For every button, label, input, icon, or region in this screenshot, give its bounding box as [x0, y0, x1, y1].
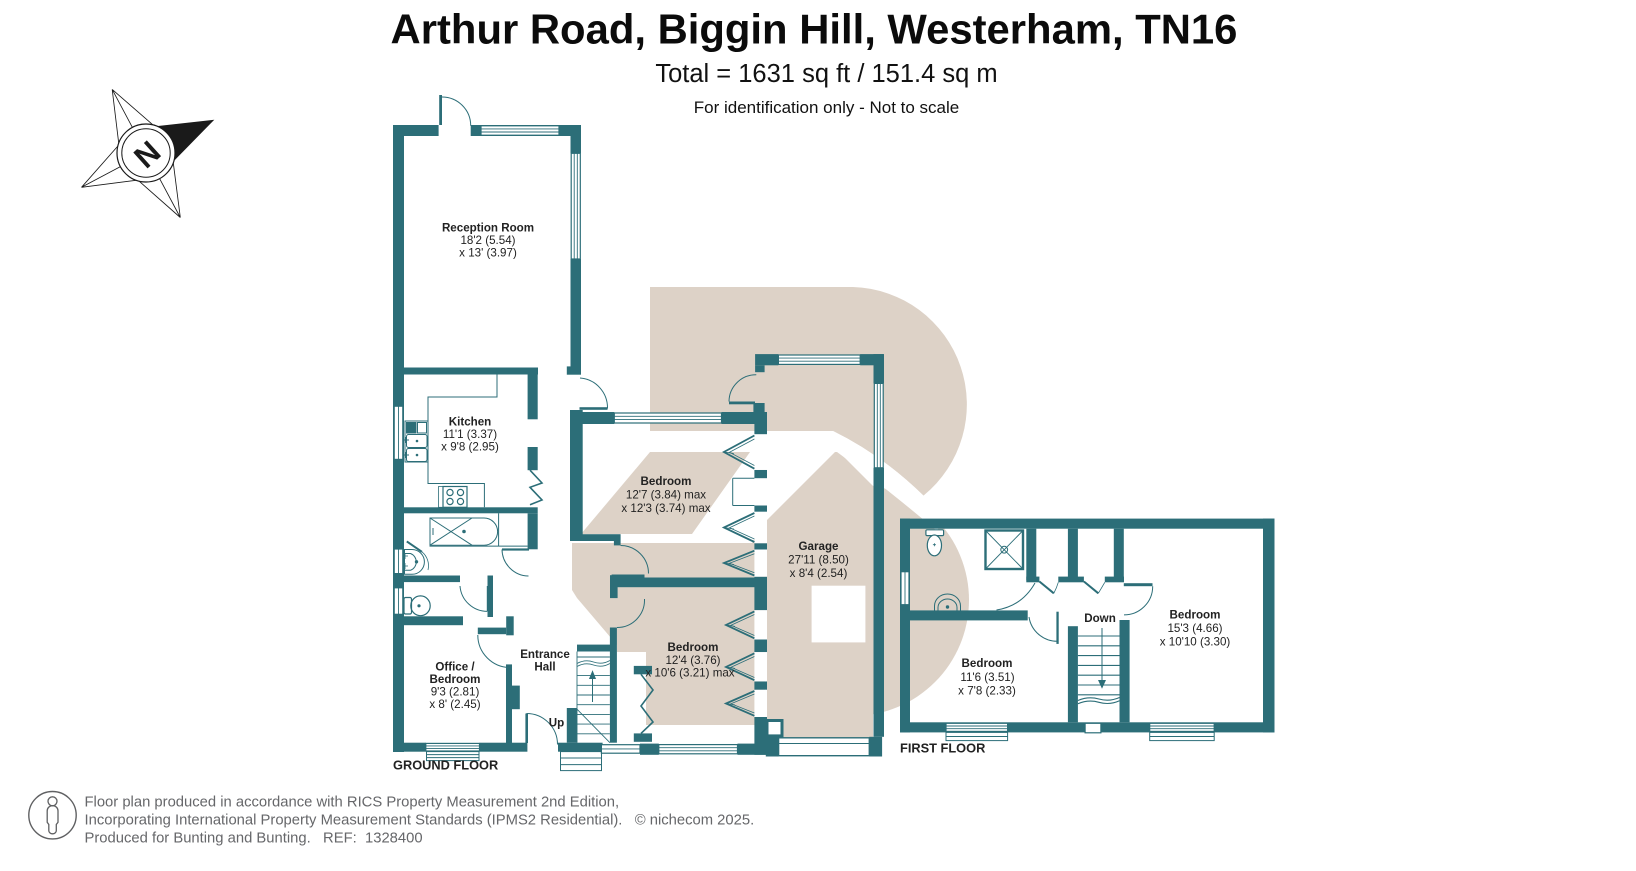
svg-text:x 7'8 (2.33): x 7'8 (2.33)	[958, 685, 1016, 698]
svg-text:GROUND FLOOR: GROUND FLOOR	[393, 758, 498, 773]
svg-text:x 9'8 (2.95): x 9'8 (2.95)	[441, 441, 499, 454]
svg-text:12'4 (3.76): 12'4 (3.76)	[665, 654, 720, 667]
svg-text:x 8'4 (2.54): x 8'4 (2.54)	[790, 567, 848, 580]
svg-text:FIRST FLOOR: FIRST FLOOR	[900, 741, 985, 756]
svg-text:Entrance: Entrance	[520, 648, 570, 661]
svg-text:Bedroom: Bedroom	[641, 475, 692, 488]
svg-text:12'7 (3.84) max: 12'7 (3.84) max	[626, 489, 706, 502]
svg-text:Bedroom: Bedroom	[668, 641, 719, 654]
svg-text:Office /: Office /	[435, 661, 475, 674]
svg-text:Kitchen: Kitchen	[449, 416, 492, 429]
svg-text:9'3 (2.81): 9'3 (2.81)	[431, 686, 480, 699]
svg-text:Hall: Hall	[534, 661, 555, 674]
svg-text:Arthur Road, Biggin Hill, West: Arthur Road, Biggin Hill, Westerham, TN1…	[391, 6, 1238, 53]
svg-text:27'11 (8.50): 27'11 (8.50)	[788, 554, 849, 567]
svg-text:Down: Down	[1084, 612, 1116, 625]
svg-text:x 10'6 (3.21) max: x 10'6 (3.21) max	[645, 667, 734, 680]
svg-text:Produced for Bunting and Bunti: Produced for Bunting and Bunting. REF: 1…	[85, 831, 423, 847]
svg-text:Up: Up	[549, 717, 564, 730]
svg-text:11'1 (3.37): 11'1 (3.37)	[443, 428, 497, 441]
svg-text:Floor plan produced in accorda: Floor plan produced in accordance with R…	[85, 795, 620, 811]
svg-text:Bedroom: Bedroom	[962, 657, 1013, 670]
svg-text:Reception Room: Reception Room	[442, 222, 534, 235]
svg-text:18'2 (5.54): 18'2 (5.54)	[460, 234, 515, 247]
svg-text:Total = 1631 sq ft / 151.4 sq: Total = 1631 sq ft / 151.4 sq m	[655, 60, 997, 88]
svg-text:Bedroom: Bedroom	[1170, 609, 1221, 622]
svg-text:15'3 (4.66): 15'3 (4.66)	[1167, 622, 1222, 635]
svg-text:For identification only - Not: For identification only - Not to scale	[694, 98, 960, 117]
svg-text:x 13' (3.97): x 13' (3.97)	[459, 247, 517, 260]
svg-text:x 12'3 (3.74) max: x 12'3 (3.74) max	[621, 502, 710, 515]
svg-text:x 8' (2.45): x 8' (2.45)	[429, 698, 480, 711]
svg-text:11'6 (3.51): 11'6 (3.51)	[960, 671, 1014, 684]
svg-text:Garage: Garage	[799, 540, 840, 553]
svg-text:Bedroom: Bedroom	[430, 673, 481, 686]
svg-text:Incorporating International Pr: Incorporating International Property Mea…	[85, 813, 755, 829]
svg-text:x 10'10 (3.30): x 10'10 (3.30)	[1160, 636, 1231, 649]
